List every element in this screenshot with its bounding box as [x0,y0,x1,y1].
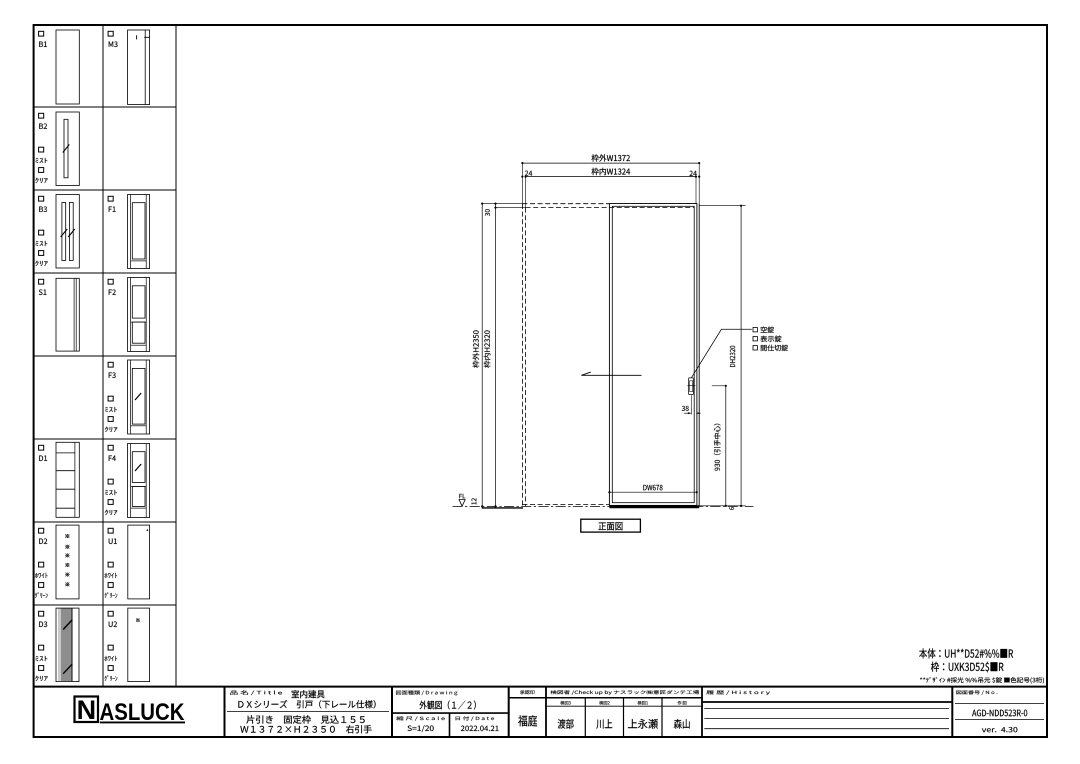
svg-text:N: N [77,695,97,725]
